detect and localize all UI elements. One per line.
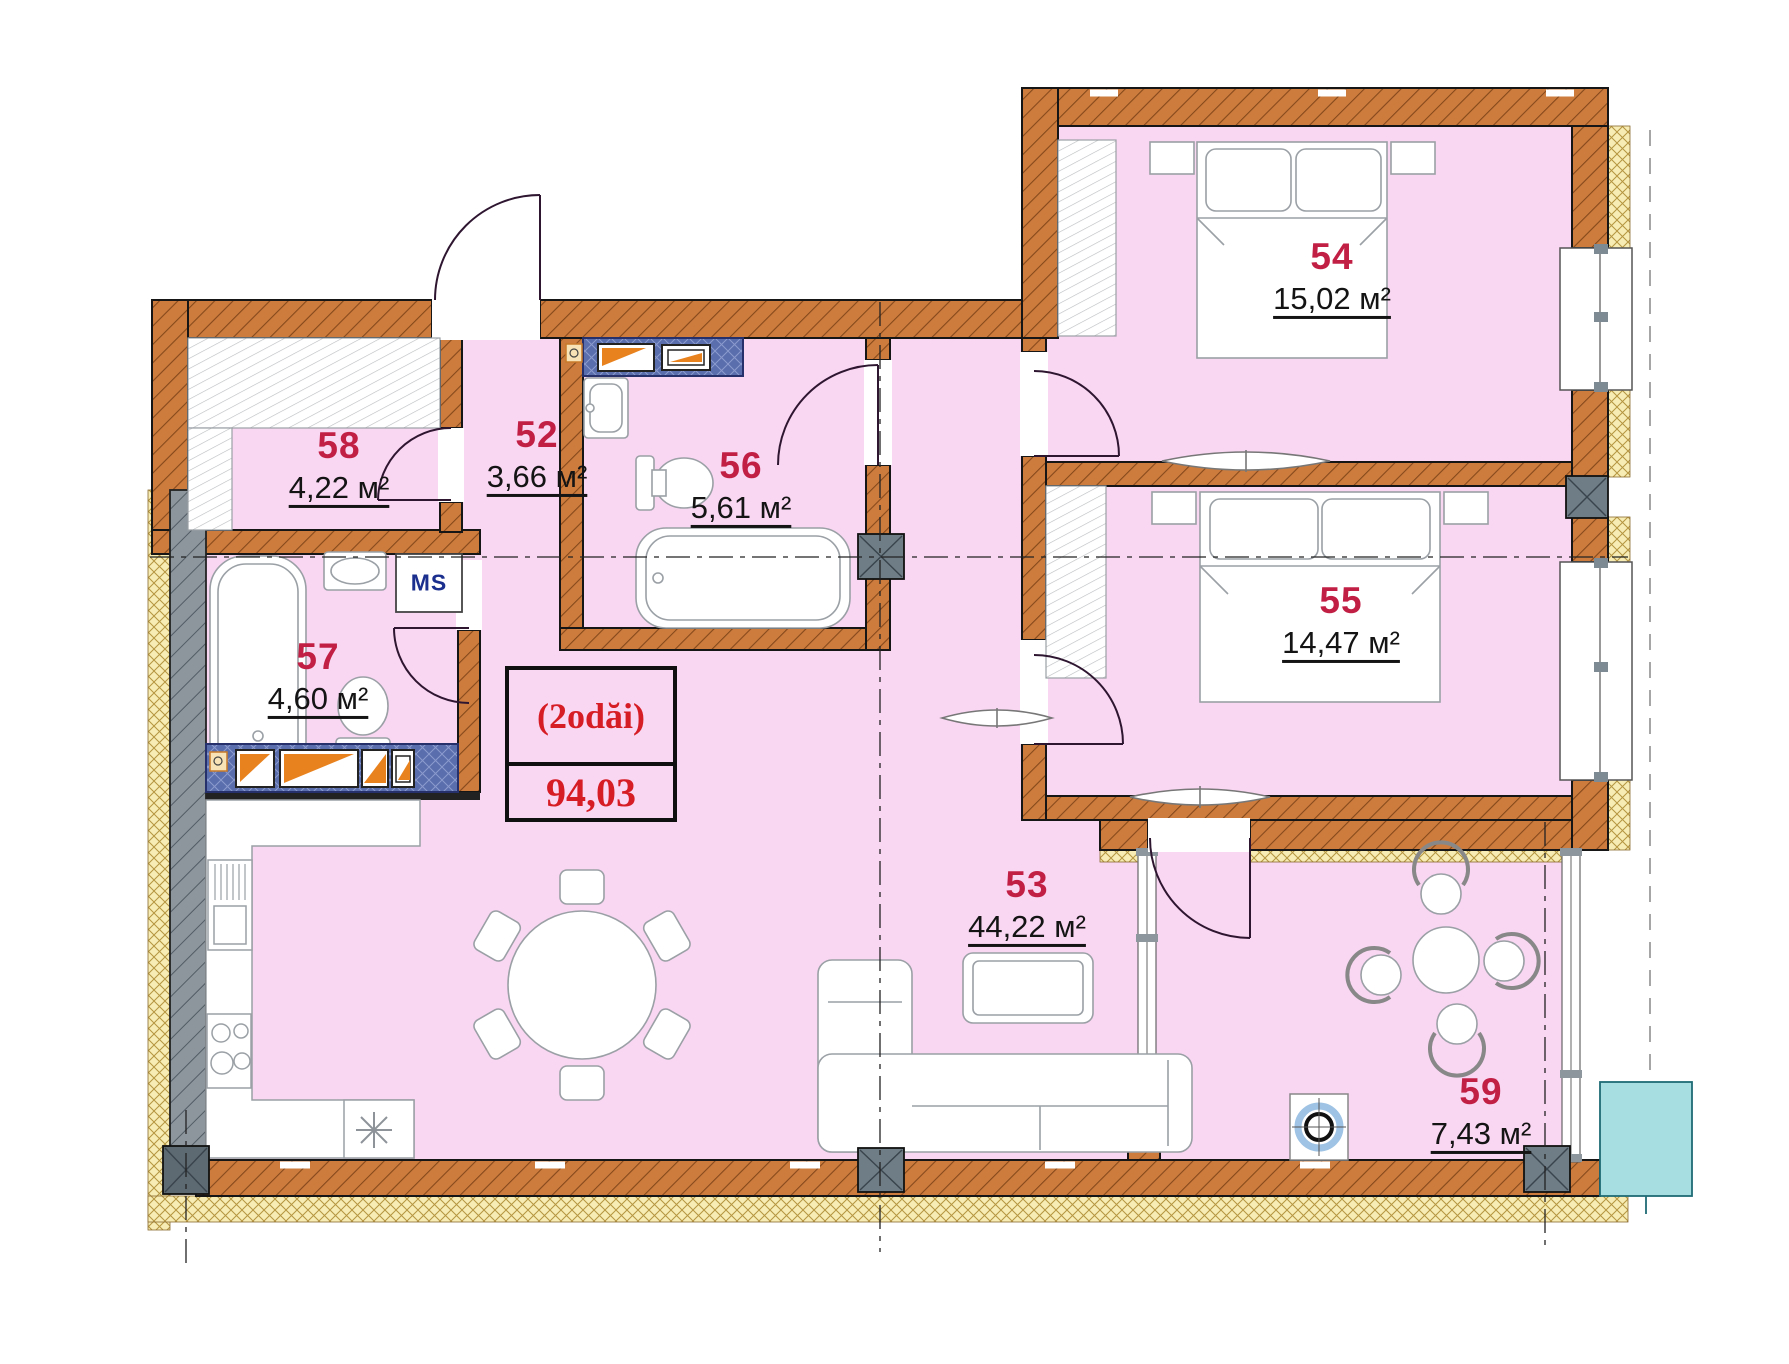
entrance-door-arc	[435, 195, 540, 300]
room-number: 58	[317, 427, 360, 464]
room-label-57: 57 4,60 м²	[268, 638, 369, 716]
room-number: 52	[515, 416, 558, 453]
room-label-56: 56 5,61 м²	[691, 447, 792, 525]
room-area: 4,60 м²	[268, 682, 369, 716]
unit-summary-box: (2odăi) 94,03	[505, 666, 677, 822]
bathroom57-bottom-edge	[206, 792, 480, 800]
bathroom57-vanity	[206, 744, 458, 792]
elevator-shaft-block	[1600, 1082, 1692, 1196]
room-number: 59	[1459, 1073, 1502, 1110]
coffee-table	[963, 953, 1093, 1023]
room-area: 7,43 м²	[1431, 1117, 1532, 1151]
washing-machine-label: MS	[411, 570, 448, 597]
room-label-58: 58 4,22 м²	[289, 427, 390, 505]
sink-symbol	[356, 1112, 392, 1148]
room-label-53: 53 44,22 м²	[968, 866, 1086, 944]
unit-rooms-count: (2odăi)	[509, 670, 673, 766]
unit-total-area: 94,03	[509, 766, 673, 818]
bathroom56-vanity	[566, 338, 743, 376]
room-label-59: 59 7,43 м²	[1431, 1073, 1532, 1151]
room-label-55: 55 14,47 м²	[1282, 582, 1400, 660]
gray-wall	[170, 490, 206, 1162]
room-number: 55	[1319, 582, 1362, 619]
room-area: 5,61 м²	[691, 491, 792, 525]
floor-plan: 58 4,22 м² 52 3,66 м² 56 5,61 м² 57 4,60…	[0, 0, 1789, 1364]
room-area: 14,47 м²	[1282, 626, 1400, 660]
room-area: 4,22 м²	[289, 471, 390, 505]
room-label-52: 52 3,66 м²	[487, 416, 588, 494]
room-label-54: 54 15,02 м²	[1273, 238, 1391, 316]
room-area: 15,02 м²	[1273, 282, 1391, 316]
room-number: 56	[719, 447, 762, 484]
room-number: 57	[296, 638, 339, 675]
room-area: 44,22 м²	[968, 910, 1086, 944]
bathtub	[636, 528, 850, 628]
boiler	[1290, 1094, 1348, 1160]
room-number: 54	[1310, 238, 1353, 275]
room-number: 53	[1005, 866, 1048, 903]
room-area: 3,66 м²	[487, 460, 588, 494]
